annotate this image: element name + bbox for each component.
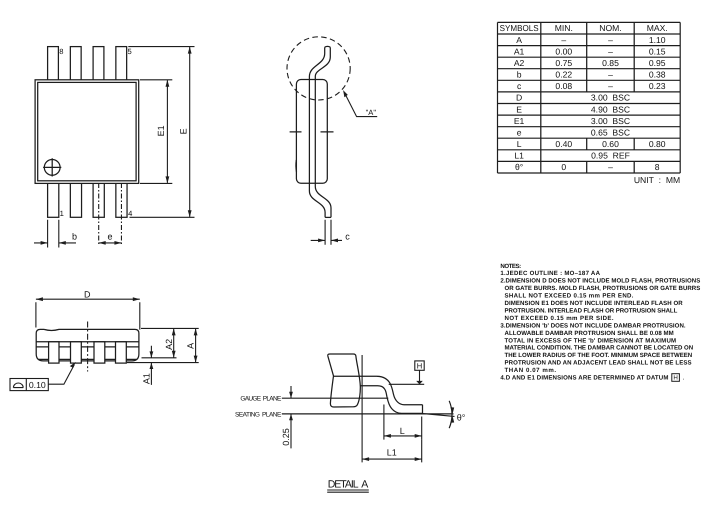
svg-text:0.08: 0.08 (555, 81, 572, 91)
svg-text:0.60: 0.60 (602, 139, 619, 149)
svg-text:0.38: 0.38 (649, 70, 666, 80)
svg-text:0.25: 0.25 (281, 428, 291, 446)
svg-text:0.15: 0.15 (649, 46, 666, 56)
svg-text:1: 1 (60, 209, 64, 218)
svg-text:0.95 REF: 0.95 REF (591, 151, 630, 161)
svg-text:0.10: 0.10 (29, 380, 46, 390)
svg-text:3.DIMENSION 'b' DOES NOT I: 3.DIMENSION 'b' DOES NOT INCLUDE DAMBAR … (500, 322, 685, 329)
svg-text:E: E (516, 104, 522, 114)
svg-text:0: 0 (561, 162, 566, 172)
svg-text:4: 4 (128, 209, 132, 218)
svg-text:0.95: 0.95 (649, 58, 666, 68)
svg-text:GAUGE PLANE: GAUGE PLANE (240, 396, 282, 403)
svg-text:1.10: 1.10 (649, 35, 666, 45)
svg-text:–: – (608, 162, 613, 172)
svg-text:0.65 BSC: 0.65 BSC (591, 128, 630, 138)
svg-text:THE LOWER RADIUS OF THE F: THE LOWER RADIUS OF THE FOOT. MINIMUM SP… (505, 352, 693, 359)
svg-text:DIMENSION E1 DOES NOT INCL: DIMENSION E1 DOES NOT INCLUDE INTERLEAD … (505, 300, 684, 307)
svg-text:SEATING PLANE: SEATING PLANE (235, 412, 282, 419)
svg-text:PROTRUSION. INTERLEAD FLASH: PROTRUSION. INTERLEAD FLASH OR PROTRUSIO… (505, 308, 678, 315)
svg-text:e: e (107, 232, 112, 242)
svg-text:–: – (608, 70, 613, 80)
svg-text:8: 8 (655, 162, 660, 172)
svg-text:3.00 BSC: 3.00 BSC (591, 116, 630, 126)
svg-text:MIN.: MIN. (555, 23, 573, 33)
svg-text:A2: A2 (164, 339, 174, 350)
svg-text:UNIT : MM: UNIT : MM (634, 175, 680, 185)
svg-text:3.00 BSC: 3.00 BSC (591, 93, 630, 103)
svg-text:0.85: 0.85 (602, 58, 619, 68)
svg-text:A: A (516, 35, 522, 45)
svg-text:0.40: 0.40 (555, 139, 572, 149)
svg-text:OR GATE BURRS. MOLD FLASH,: OR GATE BURRS. MOLD FLASH, PROTRUSIONS O… (505, 285, 701, 292)
svg-text:THAN 0.07 mm.: THAN 0.07 mm. (505, 367, 557, 374)
svg-text:L: L (517, 139, 522, 149)
svg-text:E1: E1 (514, 116, 525, 126)
svg-text:.: . (683, 375, 685, 382)
svg-text:0.80: 0.80 (649, 139, 666, 149)
svg-text:0.75: 0.75 (555, 58, 572, 68)
svg-text:L: L (400, 426, 405, 436)
svg-text:θ°: θ° (457, 412, 466, 422)
svg-text:NOT EXCEED 0.15 mm PER SI: NOT EXCEED 0.15 mm PER SIDE. (505, 315, 614, 322)
svg-text:MAX.: MAX. (647, 23, 668, 33)
svg-text:c: c (517, 81, 522, 91)
svg-text:4.D AND E1 DIMENSIONS ARE: 4.D AND E1 DIMENSIONS ARE DETERMINED AT … (500, 375, 668, 382)
svg-text:0.00: 0.00 (555, 46, 572, 56)
svg-text:SHALL NOT EXCEED 0.15 mm: SHALL NOT EXCEED 0.15 mm PER END. (505, 293, 634, 300)
svg-text:A1: A1 (141, 373, 151, 384)
svg-text:–: – (608, 35, 613, 45)
svg-text:NOM.: NOM. (599, 23, 621, 33)
svg-text:NOTES:: NOTES: (500, 263, 521, 270)
svg-text:DETAIL A: DETAIL A (328, 479, 369, 491)
svg-text:e: e (517, 128, 522, 138)
svg-text:8: 8 (59, 47, 63, 56)
svg-text:A2: A2 (514, 58, 525, 68)
svg-text:MATERIAL CONDITION. THE DAM: MATERIAL CONDITION. THE DAMBAR CANNOT BE… (505, 345, 694, 352)
svg-text:E1: E1 (156, 125, 166, 136)
svg-text:A: A (186, 343, 196, 349)
svg-text:b: b (72, 232, 77, 242)
svg-text:5: 5 (128, 47, 132, 56)
svg-text:θ°: θ° (515, 162, 523, 172)
svg-text:TOTAL IN EXCESS OF THE 'b: TOTAL IN EXCESS OF THE 'b' DIMENSION AT … (505, 337, 677, 344)
svg-text:A1: A1 (514, 46, 525, 56)
svg-text:–: – (608, 46, 613, 56)
svg-text:ALLOWABLE DAMBAR PROTRUSION: ALLOWABLE DAMBAR PROTRUSION SHALL BE 0.0… (505, 330, 674, 337)
svg-text:SYMBOLS: SYMBOLS (500, 23, 539, 33)
svg-text:"A": "A" (366, 108, 377, 117)
svg-text:0.22: 0.22 (555, 70, 572, 80)
svg-text:1.JEDEC OUTLINE : MO–187 A: 1.JEDEC OUTLINE : MO–187 AA (500, 270, 600, 277)
svg-text:L1: L1 (514, 151, 524, 161)
svg-text:2.DIMENSION D DOES NOT INC: 2.DIMENSION D DOES NOT INCLUDE MOLD FLAS… (500, 278, 700, 285)
svg-text:PROTRUSION AND AN ADJACENT: PROTRUSION AND AN ADJACENT LEAD SHALL NO… (505, 360, 692, 367)
svg-text:4.90 BSC: 4.90 BSC (591, 104, 630, 114)
svg-text:H: H (673, 375, 677, 382)
svg-text:0.23: 0.23 (649, 81, 666, 91)
svg-text:D: D (516, 93, 522, 103)
svg-text:c: c (345, 231, 350, 241)
svg-text:L1: L1 (387, 447, 397, 457)
svg-text:–: – (561, 35, 566, 45)
svg-text:H: H (417, 362, 422, 371)
svg-text:D: D (84, 290, 91, 300)
svg-text:b: b (517, 70, 522, 80)
svg-text:E: E (178, 128, 188, 134)
svg-text:–: – (608, 81, 613, 91)
